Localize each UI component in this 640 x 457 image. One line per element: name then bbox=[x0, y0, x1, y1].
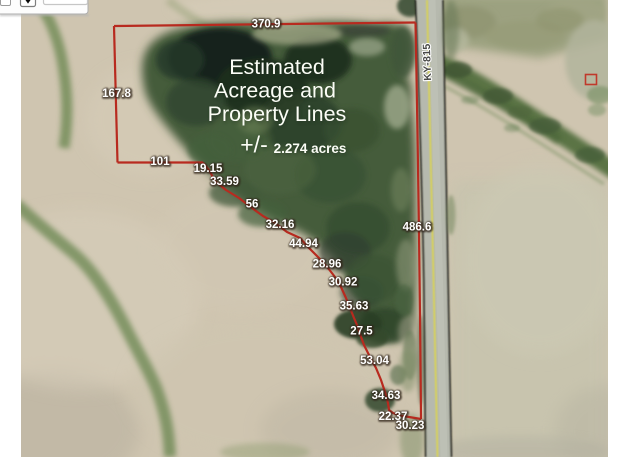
svg-text:44.94: 44.94 bbox=[289, 238, 318, 250]
svg-text:486.6: 486.6 bbox=[403, 222, 432, 234]
svg-text:32.16: 32.16 bbox=[266, 219, 295, 231]
svg-text:28.96: 28.96 bbox=[313, 259, 342, 271]
svg-text:2.274 acres: 2.274 acres bbox=[274, 141, 347, 156]
svg-text:Estimated: Estimated bbox=[229, 55, 325, 79]
svg-text:167.8: 167.8 bbox=[102, 88, 131, 100]
svg-text:53.04: 53.04 bbox=[360, 355, 389, 367]
svg-text:30.92: 30.92 bbox=[329, 277, 358, 289]
svg-text:27.5: 27.5 bbox=[350, 326, 373, 338]
svg-text:101: 101 bbox=[150, 156, 170, 168]
svg-text:56: 56 bbox=[246, 199, 259, 211]
svg-text:33.59: 33.59 bbox=[210, 176, 239, 188]
svg-text:Acreage and: Acreage and bbox=[214, 79, 336, 103]
svg-text:35.63: 35.63 bbox=[340, 301, 369, 313]
svg-text:34.63: 34.63 bbox=[372, 390, 401, 402]
svg-text:KY-815: KY-815 bbox=[421, 43, 434, 81]
svg-text:Property Lines: Property Lines bbox=[208, 102, 347, 126]
svg-text:30.23: 30.23 bbox=[396, 420, 425, 432]
svg-text:370.9: 370.9 bbox=[252, 19, 281, 31]
svg-text:19.15: 19.15 bbox=[194, 163, 223, 175]
svg-text:+/-: +/- bbox=[240, 132, 267, 158]
